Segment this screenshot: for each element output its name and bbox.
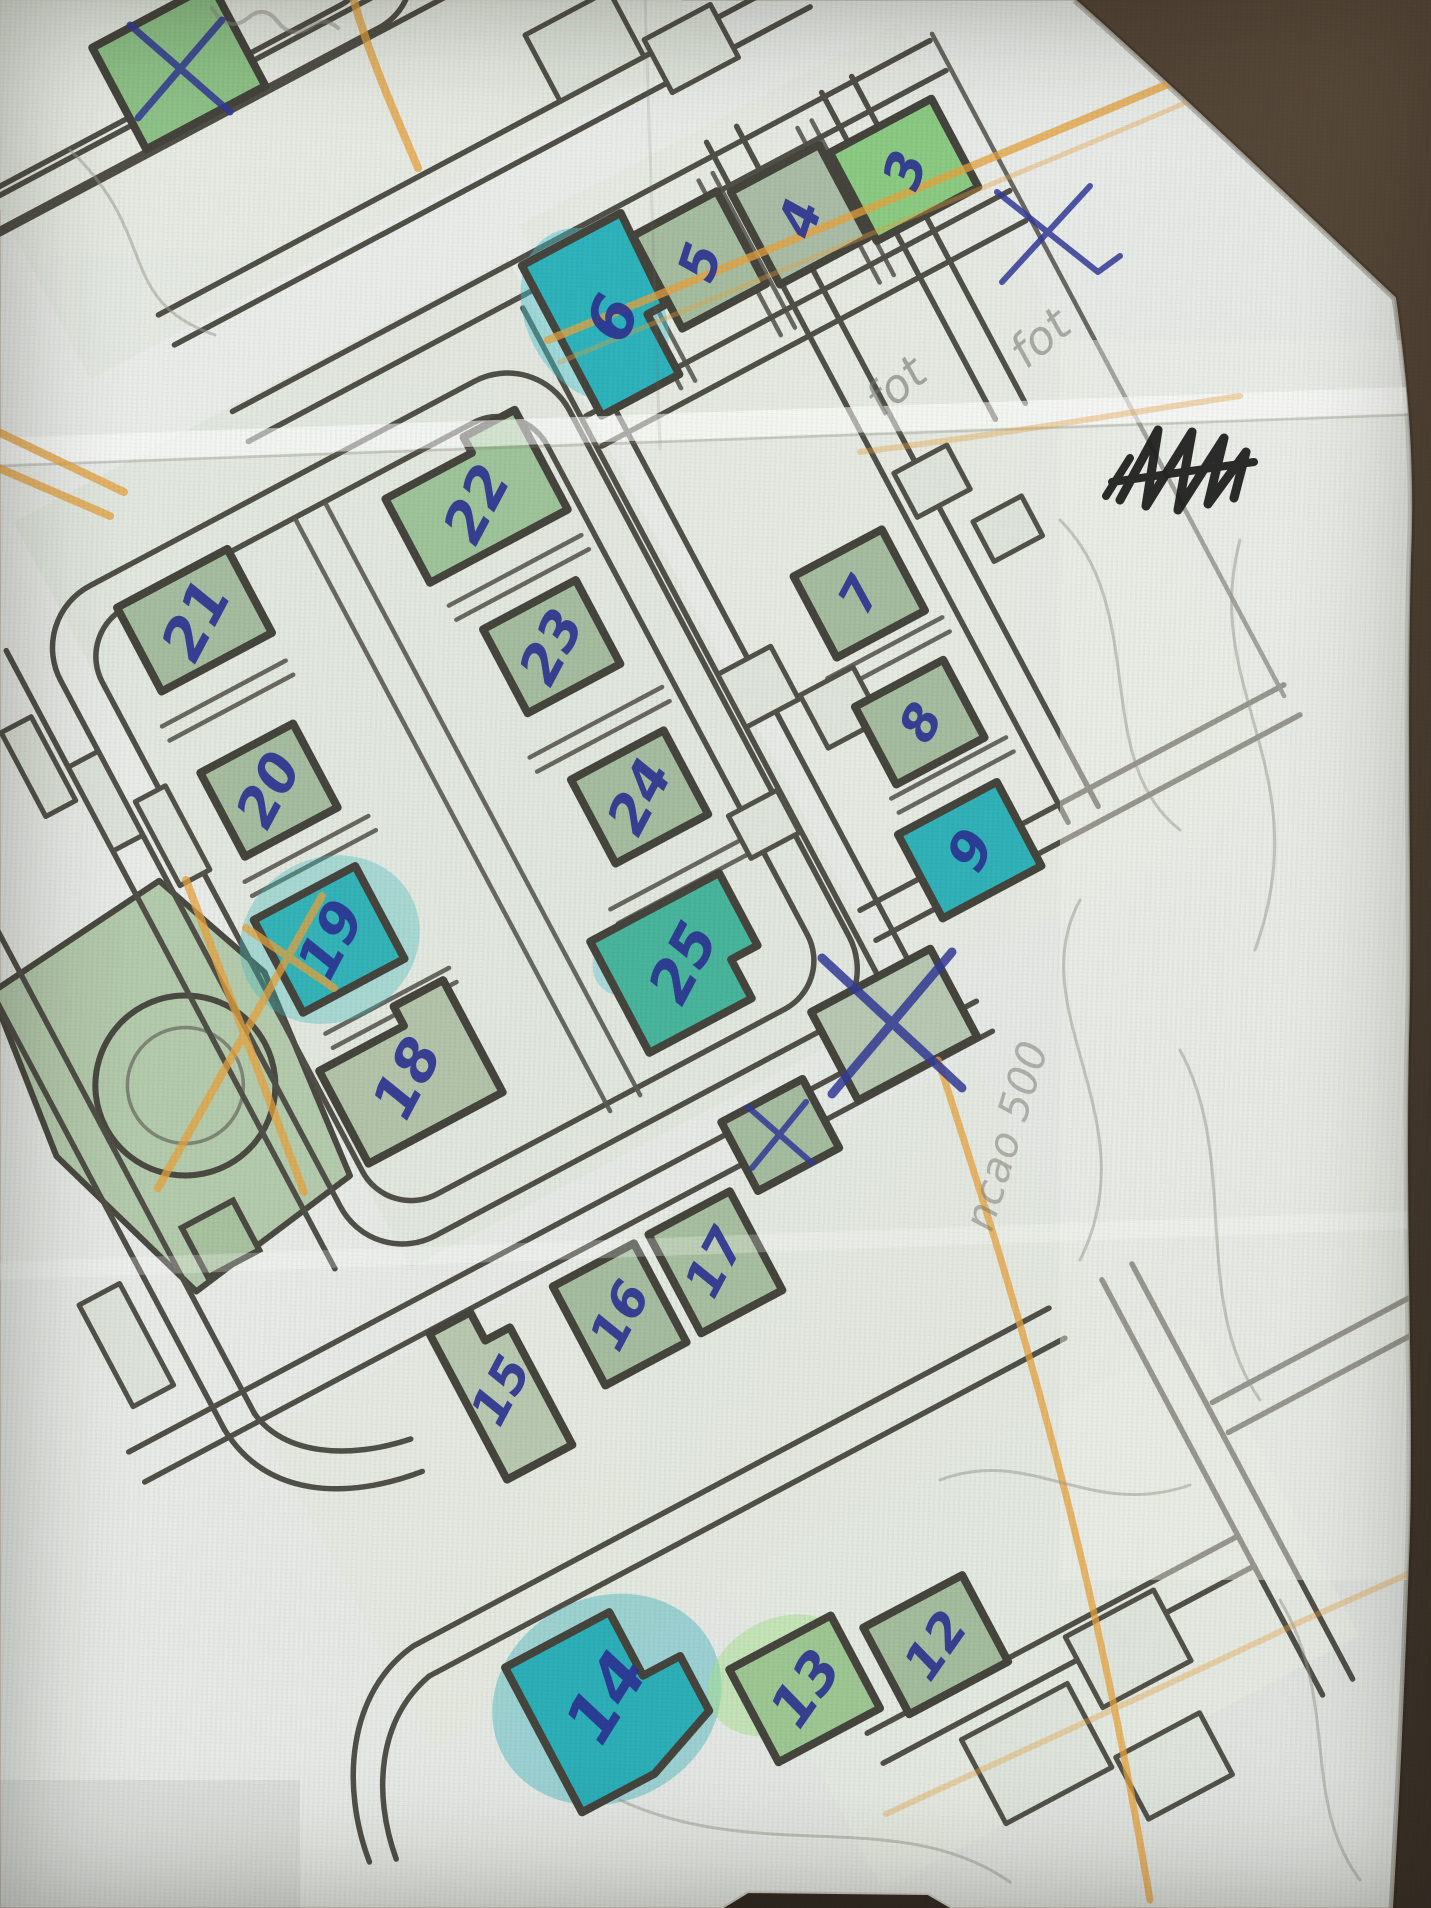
corner-shading	[0, 1780, 300, 1908]
faded-print-area	[1060, 340, 1430, 1580]
photo-of-annotated-map: fot fot ncao 500 3	[0, 0, 1431, 1908]
map-canvas: fot fot ncao 500 3	[0, 0, 1431, 1908]
